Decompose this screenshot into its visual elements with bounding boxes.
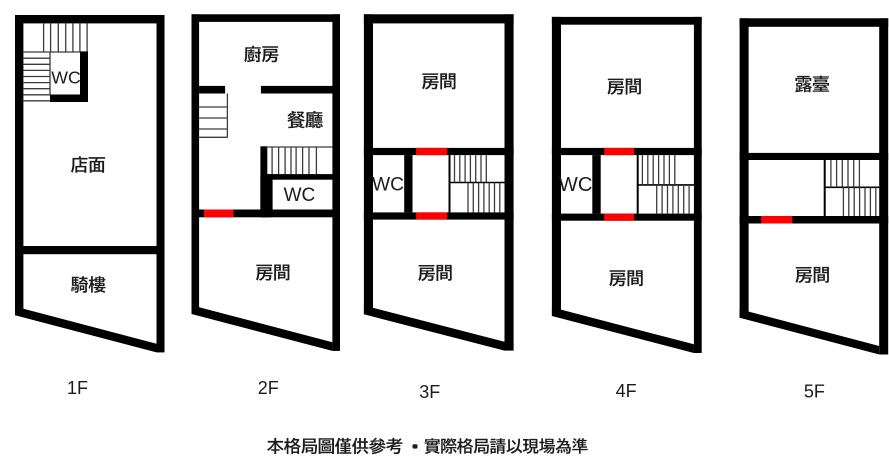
svg-text:2F: 2F (258, 378, 279, 398)
svg-text:WC: WC (372, 175, 404, 196)
svg-text:5F: 5F (804, 382, 825, 402)
svg-text:WC: WC (559, 174, 593, 196)
svg-text:WC: WC (51, 67, 81, 87)
svg-text:WC: WC (284, 185, 316, 206)
svg-text:1F: 1F (67, 378, 88, 398)
svg-text:4F: 4F (616, 381, 637, 401)
svg-text:3F: 3F (419, 382, 440, 402)
